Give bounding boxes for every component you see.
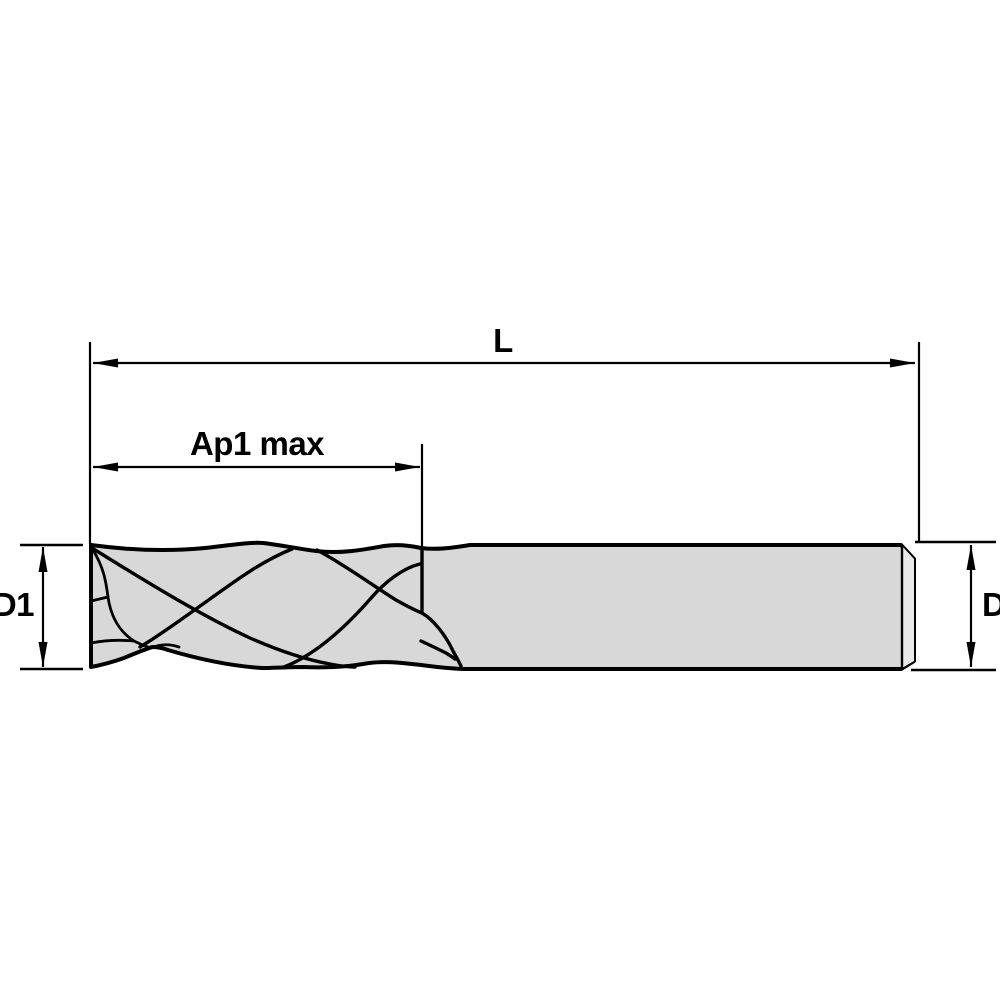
shank-chamfer-facet [902, 546, 914, 668]
drawing-canvas: L Ap1 max D1 D [0, 0, 1000, 1000]
end-mill-dimension-drawing: L Ap1 max D1 D [0, 0, 1000, 1000]
dimension-label-L: L [493, 322, 513, 359]
dimension-label-ap1: Ap1 max [190, 425, 325, 462]
tool-body [91, 543, 914, 669]
dimension-cutting-diameter: D1 [0, 545, 83, 669]
end-mill-tool [91, 543, 914, 669]
dimension-label-d: D [982, 586, 1000, 623]
dimension-shank-diameter: D [911, 542, 1000, 670]
dimension-label-d1: D1 [0, 586, 34, 623]
dimension-depth-of-cut: Ap1 max [93, 425, 422, 548]
